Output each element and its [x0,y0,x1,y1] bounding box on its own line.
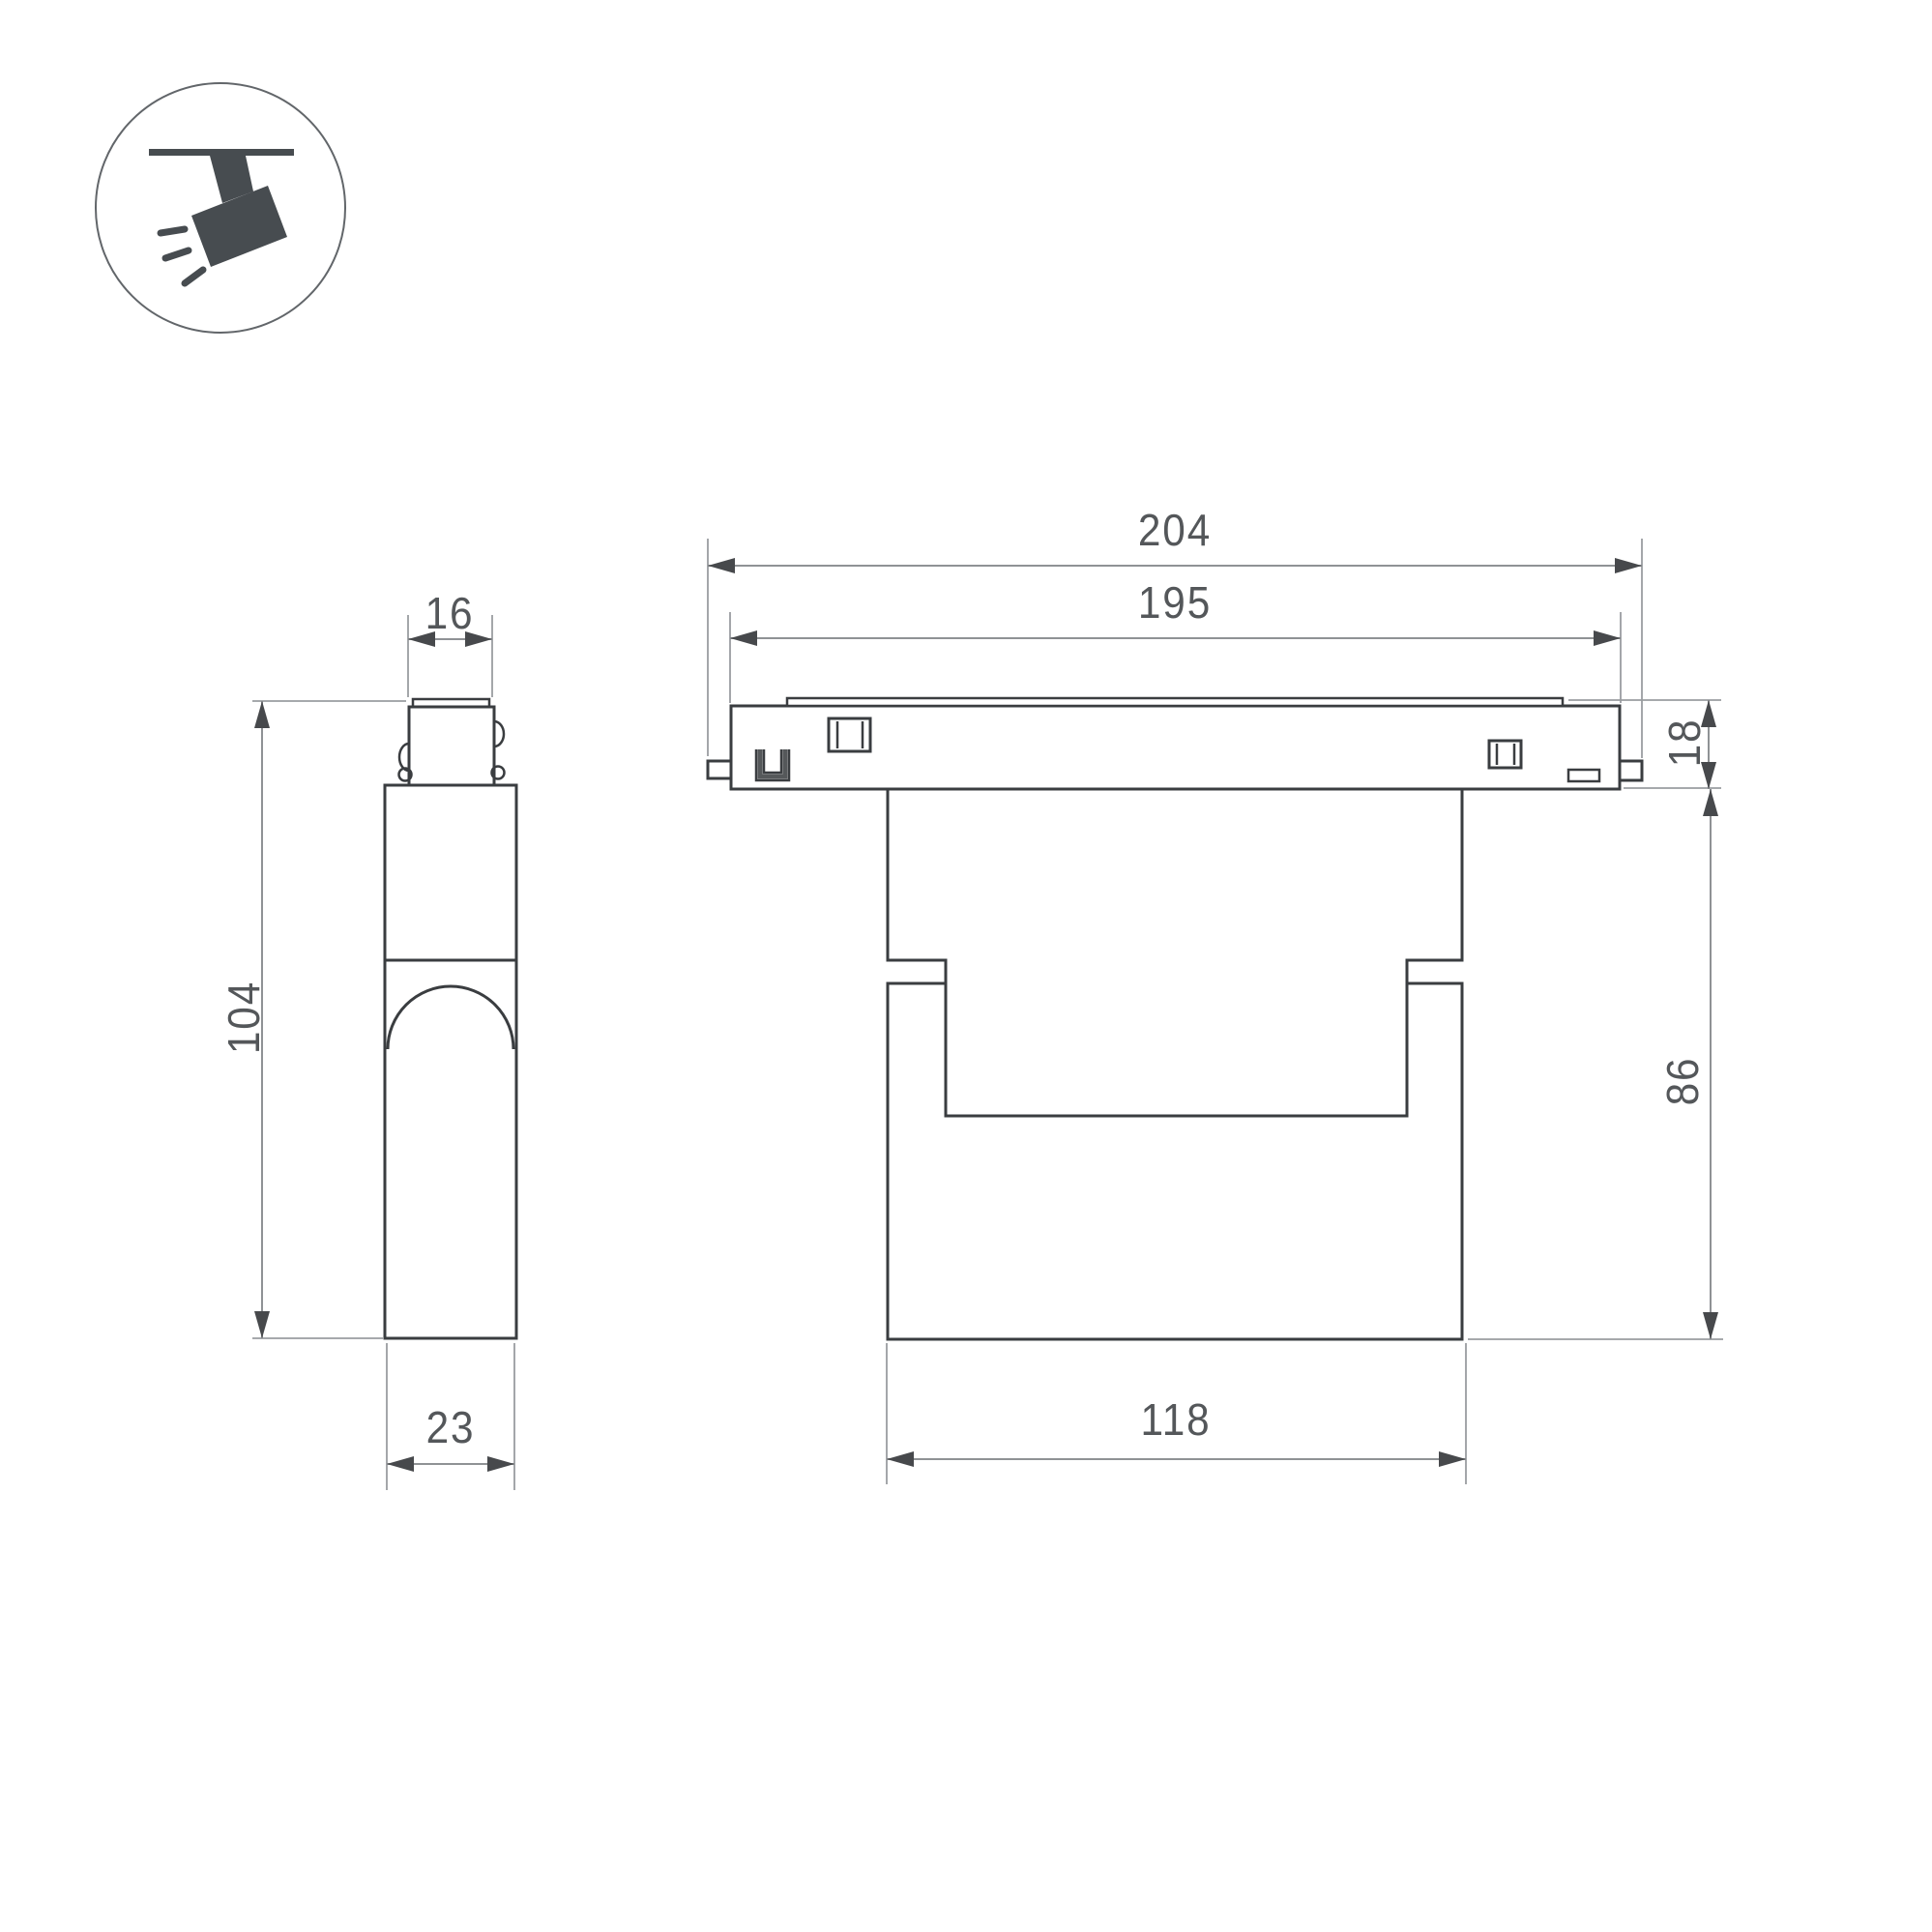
side-body [385,785,516,1338]
dim-label-body-width: 118 [1141,1393,1212,1446]
track-spotlight-icon [96,83,345,333]
dim-label-rail-height: 18 [1658,718,1711,768]
side-profile-view [385,699,516,1338]
front-body [888,789,1462,1339]
dim-label-adapter-width: 16 [425,587,475,639]
ceiling-track-bar [149,149,294,156]
technical-drawing-canvas: 204 195 16 18 104 86 23 118 [0,0,1932,1932]
front-left-connector [708,761,731,778]
dim-label-body-height: 86 [1656,1057,1709,1106]
front-right-connector [1620,761,1642,780]
front-left-terminal [829,718,870,751]
dim-label-side-depth: 23 [426,1401,476,1453]
side-track-adapter [409,707,494,785]
front-elevation-view [708,698,1642,1339]
dim-label-overall-width: 204 [1138,504,1212,556]
dim-label-rail-width: 195 [1138,576,1212,629]
front-right-slot [1568,770,1599,781]
front-rail-top-strip [787,698,1563,706]
front-right-terminal [1489,741,1521,768]
drawing-geometry [0,0,1932,1932]
dim-label-side-height: 104 [218,981,270,1054]
